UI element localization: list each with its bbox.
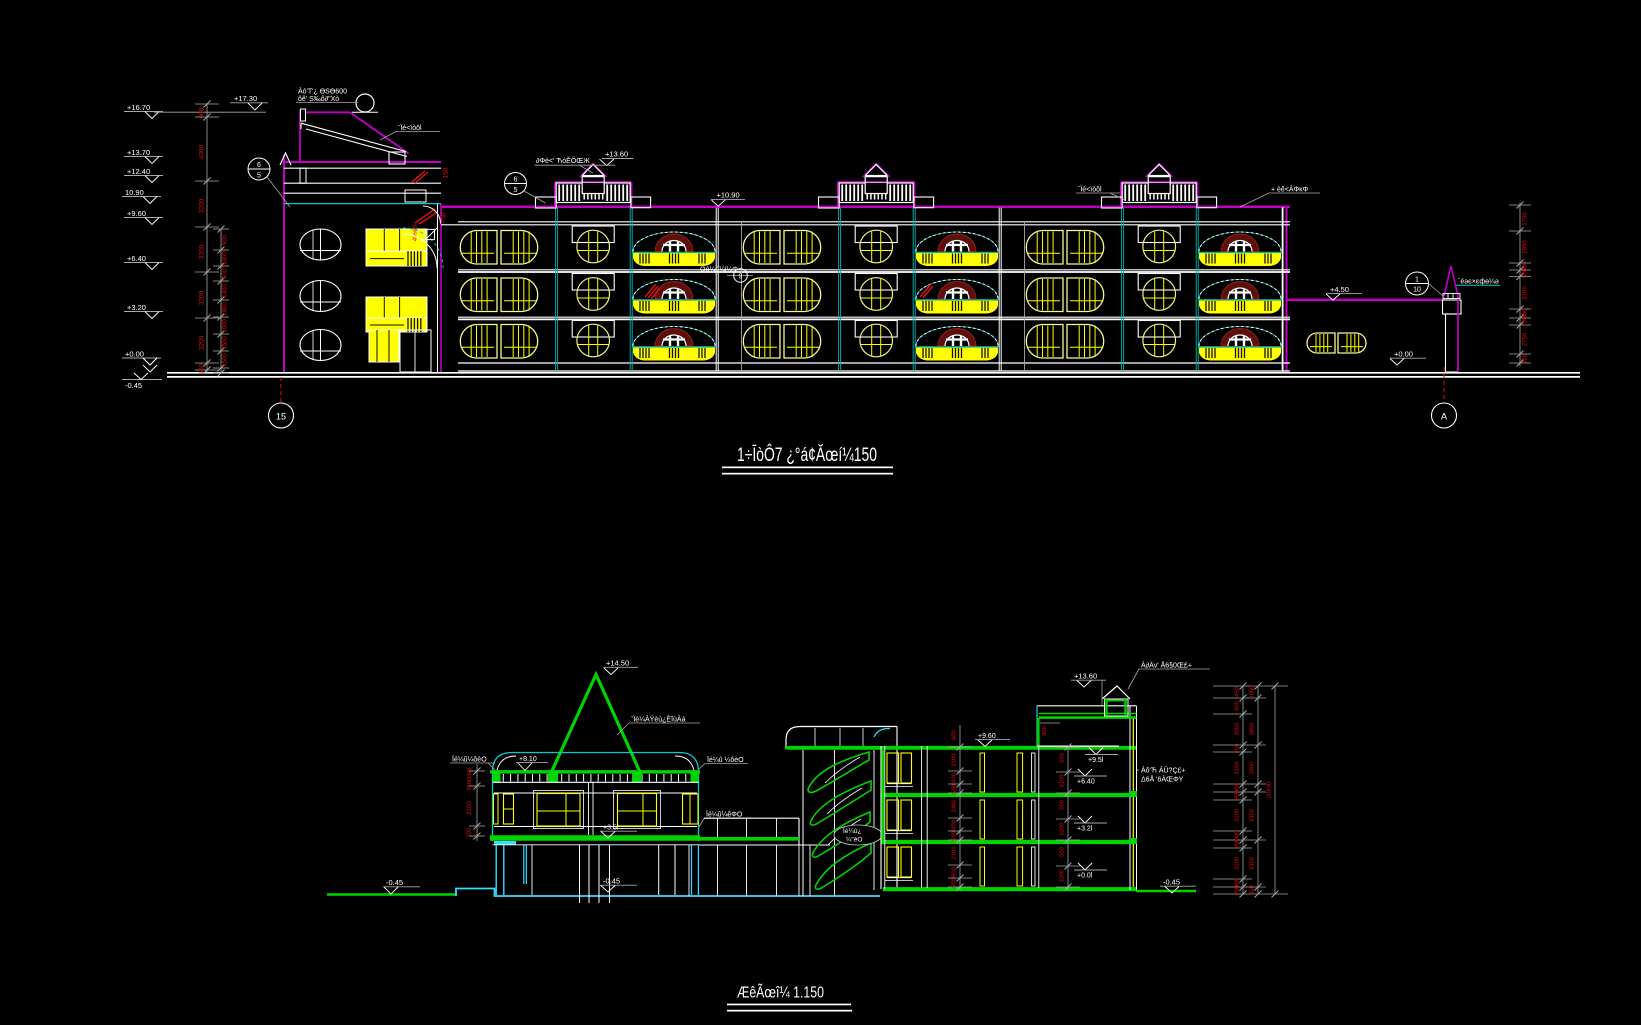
svg-text:1400: 1400 xyxy=(223,284,229,298)
svg-text:900: 900 xyxy=(223,234,229,245)
svg-text:A: A xyxy=(1441,412,1448,423)
svg-text:3200: 3200 xyxy=(199,198,206,213)
svg-text:ˉÏé<ïòôl: ˉÏé<ïòôl xyxy=(1078,186,1102,194)
svg-text:+6.40: +6.40 xyxy=(127,254,146,263)
svg-text:+3.20: +3.20 xyxy=(127,303,146,312)
svg-text:Ïé¼û¼êΦO: Ïé¼û¼êΦO xyxy=(706,811,743,819)
svg-text:500: 500 xyxy=(952,878,958,888)
svg-text:+4.50: +4.50 xyxy=(1330,285,1349,294)
svg-text:3350: 3350 xyxy=(1250,809,1256,822)
svg-text:+3.2Ɩ: +3.2Ɩ xyxy=(1077,826,1093,833)
svg-text:450: 450 xyxy=(1250,885,1256,895)
svg-text:2100: 2100 xyxy=(952,847,958,860)
svg-text:2750: 2750 xyxy=(1523,332,1529,346)
svg-text:300: 300 xyxy=(1235,831,1241,841)
svg-text:Ïé¼û¿: Ïé¼û¿ xyxy=(843,827,861,835)
svg-text:3400: 3400 xyxy=(1250,762,1256,775)
svg-text:+0.00: +0.00 xyxy=(125,350,144,359)
svg-text:3200: 3200 xyxy=(199,244,206,259)
svg-text:2800: 2800 xyxy=(223,302,229,316)
svg-text:500: 500 xyxy=(1060,847,1066,857)
svg-text:¼"êO: ¼"êO xyxy=(846,837,862,844)
svg-text:450: 450 xyxy=(199,363,206,374)
svg-text:3100: 3100 xyxy=(1235,857,1241,870)
svg-text:1050: 1050 xyxy=(1250,686,1256,699)
svg-text:Ïé¼û¼ôèO: Ïé¼û¼ôèO xyxy=(452,756,487,764)
svg-text:900: 900 xyxy=(199,107,206,118)
svg-text:9: 9 xyxy=(739,274,743,281)
svg-text:3200: 3200 xyxy=(1060,870,1066,883)
svg-text:∂Φè<' ЋóӖÖŒЖ: ∂Φè<' ЋóӖÖŒЖ xyxy=(536,156,590,165)
svg-text:+12.40: +12.40 xyxy=(127,167,150,176)
svg-text:2100: 2100 xyxy=(952,754,958,767)
svg-text:+16.70: +16.70 xyxy=(127,103,150,112)
svg-text:ôê' S‰ô∂"Xò: ôê' S‰ô∂"Xò xyxy=(298,96,339,103)
svg-text:-0.45: -0.45 xyxy=(603,877,620,886)
svg-text:6: 6 xyxy=(514,177,518,184)
svg-text:600: 600 xyxy=(952,730,958,740)
svg-text:750: 750 xyxy=(441,212,448,223)
svg-text:-0.45: -0.45 xyxy=(1163,878,1180,887)
svg-text:550: 550 xyxy=(1523,267,1529,278)
svg-text:2460: 2460 xyxy=(952,800,958,813)
svg-text:500: 500 xyxy=(223,268,229,279)
svg-text:500: 500 xyxy=(1060,753,1066,763)
svg-text:5: 5 xyxy=(257,173,261,180)
svg-text:-0.45: -0.45 xyxy=(386,878,403,887)
svg-text:3150: 3150 xyxy=(1235,762,1241,775)
svg-text:3200: 3200 xyxy=(1060,823,1066,836)
svg-text:1: 1 xyxy=(1415,277,1419,284)
svg-text:600: 600 xyxy=(952,867,958,877)
svg-text:+6.40: +6.40 xyxy=(1077,779,1095,786)
svg-text:20600: 20600 xyxy=(1267,782,1273,798)
svg-text:3100: 3100 xyxy=(1235,809,1241,822)
svg-text:Àô'Ћ ÀÛ?Ç£+: Àô'Ћ ÀÛ?Ç£+ xyxy=(1141,766,1185,775)
svg-text:+9.5Ɩ: +9.5Ɩ xyxy=(1088,757,1104,764)
svg-text:+0.00: +0.00 xyxy=(1394,350,1413,359)
svg-text:1÷ĪòÔ7 ¿°á¢Ăœí¼150: 1÷ĪòÔ7 ¿°á¢Ăœí¼150 xyxy=(737,444,877,466)
svg-text:1700: 1700 xyxy=(1523,212,1529,226)
svg-text:+14.50: +14.50 xyxy=(606,659,629,668)
svg-text:950(150): 950(150) xyxy=(467,767,473,790)
svg-text:+13.60: +13.60 xyxy=(605,150,628,159)
svg-text:Ïé¼û ¼ôèO: Ïé¼û ¼ôèO xyxy=(707,756,744,764)
svg-text:3650: 3650 xyxy=(1250,723,1256,736)
svg-text:6: 6 xyxy=(257,162,261,169)
svg-text:15: 15 xyxy=(276,412,286,422)
svg-text:1000: 1000 xyxy=(223,319,229,333)
svg-text:+3.5Ɩ: +3.5Ɩ xyxy=(603,825,619,832)
svg-text:10.90: 10.90 xyxy=(125,188,144,197)
svg-text:500: 500 xyxy=(1060,800,1066,810)
svg-text:3500: 3500 xyxy=(223,336,229,350)
svg-text:700: 700 xyxy=(1523,316,1529,327)
svg-text:250: 250 xyxy=(1235,791,1241,801)
svg-text:4300: 4300 xyxy=(199,144,206,159)
svg-text:3200: 3200 xyxy=(199,335,206,350)
svg-text:600: 600 xyxy=(952,773,958,783)
svg-text:450: 450 xyxy=(1235,687,1241,697)
svg-text:ˉÏè¼ÀŸèù¿ÈîùÀá: ˉÏè¼ÀŸèù¿ÈîùÀá xyxy=(631,715,686,724)
svg-text:+10.90: +10.90 xyxy=(717,191,740,200)
svg-text:250: 250 xyxy=(1235,839,1241,849)
svg-text:+8.10: +8.10 xyxy=(519,756,537,763)
svg-text:ÆêÃœî¼ 1.150: ÆêÃœî¼ 1.150 xyxy=(737,982,824,1002)
svg-text:500: 500 xyxy=(952,784,958,794)
svg-text:3050: 3050 xyxy=(1235,723,1241,736)
svg-text:10: 10 xyxy=(1413,287,1421,294)
svg-text:150: 150 xyxy=(443,167,450,178)
svg-text:3100: 3100 xyxy=(1060,775,1066,788)
svg-text:+9.60: +9.60 xyxy=(978,733,996,740)
svg-text:2850: 2850 xyxy=(1523,240,1529,254)
svg-text:1500: 1500 xyxy=(223,353,229,367)
svg-text:À∂Äν' Å6§0Œ£+: À∂Äν' Å6§0Œ£+ xyxy=(1141,661,1192,670)
svg-text:3200: 3200 xyxy=(199,290,206,305)
svg-text:500: 500 xyxy=(952,831,958,841)
svg-text:1800: 1800 xyxy=(223,251,229,265)
svg-text:600: 600 xyxy=(1235,701,1241,711)
svg-text:3100: 3100 xyxy=(1523,286,1529,300)
svg-text:4%60: 4%60 xyxy=(412,224,419,241)
svg-text:ˉéəє×єфө¼ə: ˉéəє×єфө¼ə xyxy=(1458,279,1499,286)
svg-text:Òè¼ù¼і¼Φ: Òè¼ù¼і¼Φ xyxy=(700,265,738,274)
svg-text:+0.0Ɩ: +0.0Ɩ xyxy=(1077,873,1093,880)
svg-text:5: 5 xyxy=(514,187,518,194)
svg-text:+17.30: +17.30 xyxy=(234,94,257,103)
svg-text:900: 900 xyxy=(1042,726,1048,736)
svg-text:600: 600 xyxy=(952,820,958,830)
svg-text:400: 400 xyxy=(1523,353,1529,364)
svg-text:Δ6Å '6ÀŒΦY: Δ6Å '6ÀŒΦY xyxy=(1141,775,1184,784)
svg-text:250: 250 xyxy=(1235,886,1241,896)
svg-text:+13.60: +13.60 xyxy=(1074,672,1097,681)
svg-text:700: 700 xyxy=(467,827,473,838)
svg-text:3350: 3350 xyxy=(1250,857,1256,870)
svg-text:250: 250 xyxy=(1235,744,1241,754)
svg-text:ˉÏé<ïòôl: ˉÏé<ïòôl xyxy=(398,124,422,132)
svg-text:+13.70: +13.70 xyxy=(127,148,150,157)
svg-text:Àó'T'¿ ӨЅӨ600: Àó'T'¿ ӨЅӨ600 xyxy=(298,87,347,96)
svg-text:-0.45: -0.45 xyxy=(125,381,142,390)
svg-text:+9.60: +9.60 xyxy=(127,209,146,218)
svg-text:2100: 2100 xyxy=(467,801,473,815)
svg-text:+ èê<ÀΦκΦ: + èê<ÀΦκΦ xyxy=(1271,185,1309,194)
